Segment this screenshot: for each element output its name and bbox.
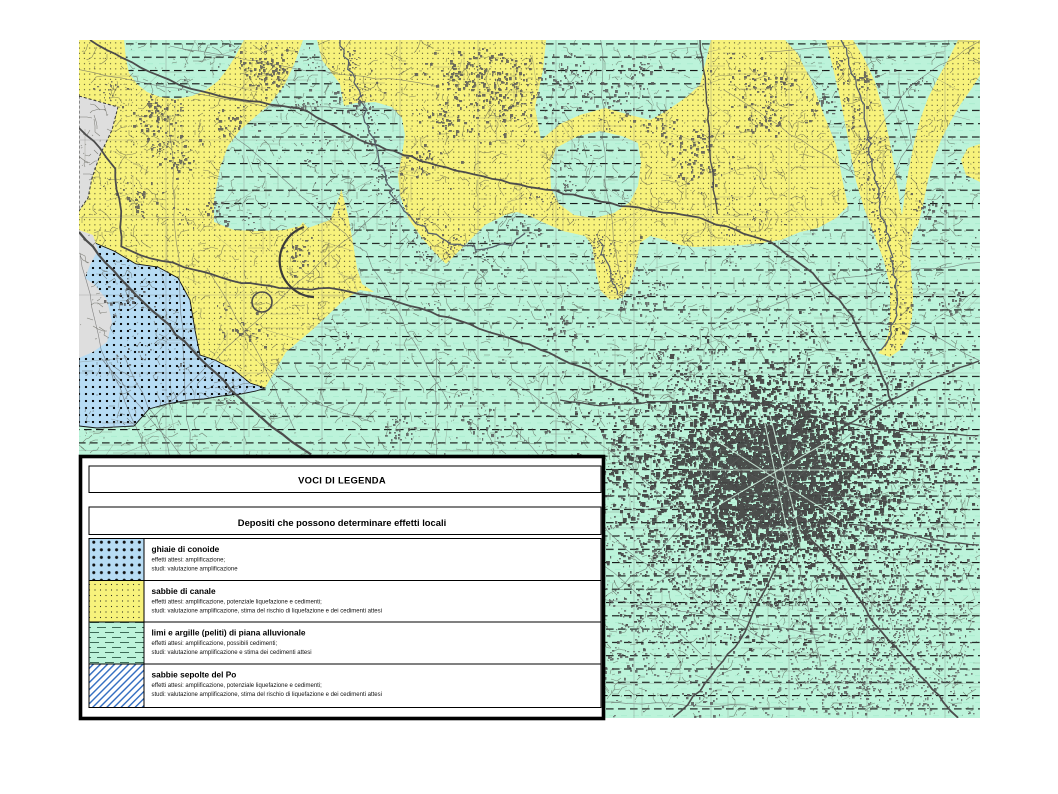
svg-text:effetti attesi: amplificazione: effetti attesi: amplificazione; bbox=[152, 558, 226, 564]
svg-text:VOCI DI LEGENDA: VOCI DI LEGENDA bbox=[298, 475, 386, 486]
svg-text:effetti attesi: amplificazione: effetti attesi: amplificazione, possibil… bbox=[152, 641, 278, 647]
svg-text:studi: valutazione amplificazi: studi: valutazione amplificazione, stima… bbox=[152, 692, 382, 698]
svg-text:sabbie sepolte del Po: sabbie sepolte del Po bbox=[152, 670, 237, 680]
svg-text:studi: valutazione amplificazi: studi: valutazione amplificazione bbox=[152, 567, 239, 573]
svg-text:limi e argille (peliti) di pia: limi e argille (peliti) di piana alluvio… bbox=[152, 628, 306, 638]
svg-text:studi: valutazione amplificazi: studi: valutazione amplificazione, stima… bbox=[152, 609, 382, 615]
svg-text:Depositi che possono determina: Depositi che possono determinare effetti… bbox=[238, 517, 446, 528]
svg-text:effetti attesi: amplificazione: effetti attesi: amplificazione, potenzia… bbox=[152, 683, 323, 689]
svg-text:effetti attesi: amplificazione: effetti attesi: amplificazione, potenzia… bbox=[152, 600, 323, 606]
svg-text:ghiaie di conoide: ghiaie di conoide bbox=[152, 544, 220, 554]
svg-text:studi: valutazione amplificazi: studi: valutazione amplificazione e stim… bbox=[152, 650, 312, 656]
svg-text:sabbie di canale: sabbie di canale bbox=[152, 586, 216, 596]
svg-text:MODENA: MODENA bbox=[766, 601, 809, 608]
